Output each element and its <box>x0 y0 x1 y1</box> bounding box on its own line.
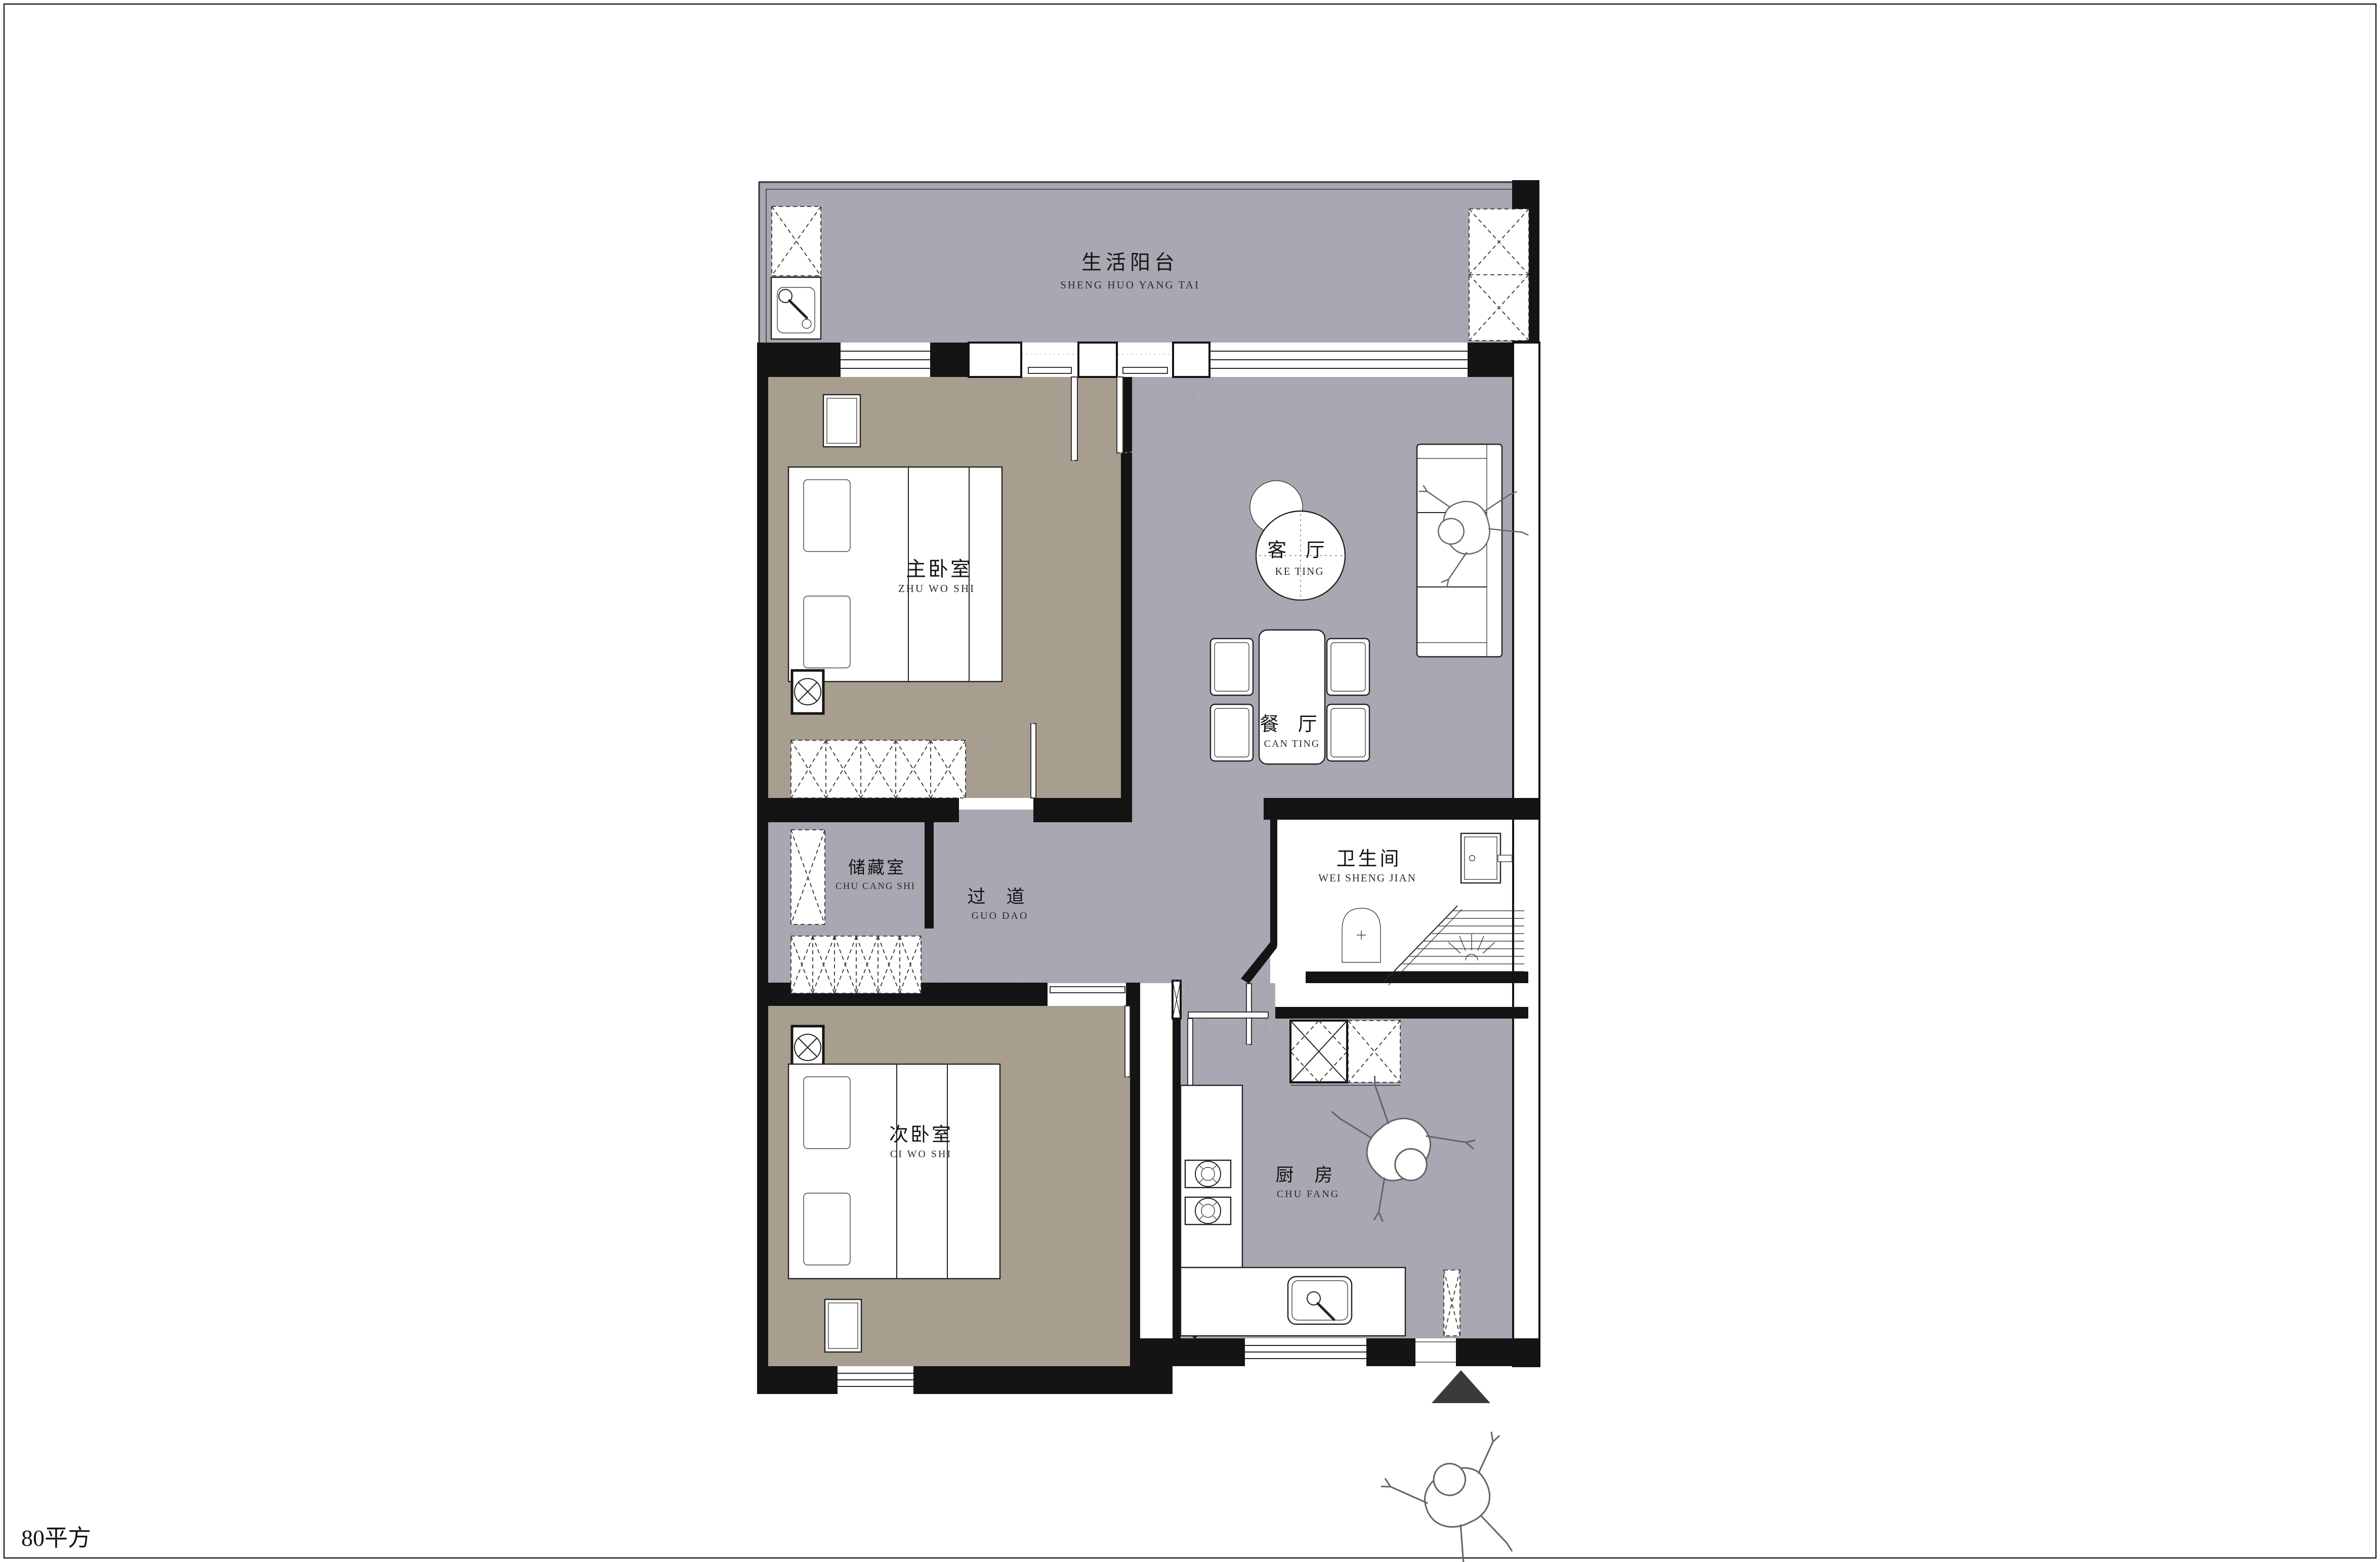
kitchen-label: 厨 房 <box>1275 1165 1341 1185</box>
left-outer-wall <box>757 343 768 1394</box>
entrance <box>1380 1370 1545 1562</box>
kitchen-tall-cabinet-symbol <box>1444 1270 1460 1336</box>
kitchen-left-wall <box>1173 1019 1181 1341</box>
balcony-right-cabinet-symbol <box>1469 209 1529 341</box>
kitchen-sink <box>1288 1277 1352 1324</box>
second-bedroom-nightstand <box>825 1299 861 1352</box>
second-bed <box>788 1064 1000 1279</box>
gas-burner <box>1185 1160 1231 1188</box>
balcony-cabinet-symbol <box>772 206 821 276</box>
living-bottom-wall <box>1264 798 1538 820</box>
balcony-pinyin: SHENG HUO YANG TAI <box>1060 279 1200 291</box>
corridor: 过 道 GUO DAO <box>967 886 1032 921</box>
storage-doorway-floor <box>925 928 934 983</box>
dining-room-label: 餐 厅 <box>1260 714 1324 735</box>
area-label: 80平方 <box>21 1525 91 1551</box>
air-conditioner-symbol <box>792 670 823 713</box>
storage-pinyin: CHU CANG SHI <box>836 881 915 892</box>
gas-burner <box>1185 1197 1231 1225</box>
dining-chair <box>1327 704 1369 761</box>
living-room-pinyin: KE TING <box>1275 565 1324 577</box>
corridor-label: 过 道 <box>967 886 1032 907</box>
balcony-sink <box>771 277 821 339</box>
entrance-arrow <box>1432 1370 1490 1403</box>
person-figure-entrance <box>1380 1428 1545 1562</box>
master-wardrobe-symbol <box>791 740 966 798</box>
dining-chair <box>1210 639 1253 695</box>
air-conditioner-symbol-2 <box>792 1026 823 1069</box>
kitchen-top-wall <box>1275 1007 1528 1019</box>
storage-wardrobe-symbol <box>791 936 921 993</box>
refrigerator-symbol <box>1290 1021 1347 1082</box>
storage-label: 储藏室 <box>848 858 906 877</box>
master-desk <box>823 395 860 447</box>
master-bedroom-pinyin: ZHU WO SHI <box>898 582 975 595</box>
balcony-label: 生活阳台 <box>1081 251 1179 274</box>
living-balcony-window <box>1209 343 1468 377</box>
floor-plan-page: 主卧室 ZHU WO SHI 储藏室 CHU CANG SHI 过 道 GUO … <box>0 0 2380 1562</box>
dining-chair <box>1327 639 1369 695</box>
living-room-label: 客 厅 <box>1267 540 1332 561</box>
bathroom: 卫生间 WEI SHENG JIAN <box>1318 833 1524 985</box>
storage-wall <box>925 822 934 928</box>
second-bedroom-wall <box>1130 1006 1140 1366</box>
dining-corridor-link-floor <box>1132 798 1264 810</box>
toilet <box>1342 908 1381 962</box>
right-outer-wall <box>1513 343 1539 1366</box>
kitchen-window <box>1245 1338 1366 1366</box>
kitchen-cabinet-symbol <box>1348 1021 1400 1082</box>
second-bedroom-pinyin: CI WO SHI <box>890 1149 952 1160</box>
master-bedroom-label: 主卧室 <box>906 558 973 580</box>
storage-cabinet-symbol <box>791 830 825 924</box>
dining-chair <box>1210 704 1253 761</box>
bathroom-left-wall <box>1270 820 1277 946</box>
floor-plan-drawing: 主卧室 ZHU WO SHI 储藏室 CHU CANG SHI 过 道 GUO … <box>0 0 2380 1562</box>
entry-door-opening <box>1415 1338 1456 1366</box>
kitchen-pinyin: CHU FANG <box>1277 1189 1340 1200</box>
corridor-pinyin: GUO DAO <box>972 910 1029 921</box>
bathroom-door-panel <box>1461 833 1512 883</box>
bathroom-label: 卫生间 <box>1336 849 1401 870</box>
master-balcony-window <box>841 343 930 377</box>
second-bedroom-label: 次卧室 <box>889 1124 953 1146</box>
second-bedroom-window <box>838 1366 913 1394</box>
dining-room-pinyin: CAN TING <box>1264 738 1320 749</box>
bathroom-pinyin: WEI SHENG JIAN <box>1318 872 1416 884</box>
bathroom-bottom-wall <box>1306 972 1528 983</box>
